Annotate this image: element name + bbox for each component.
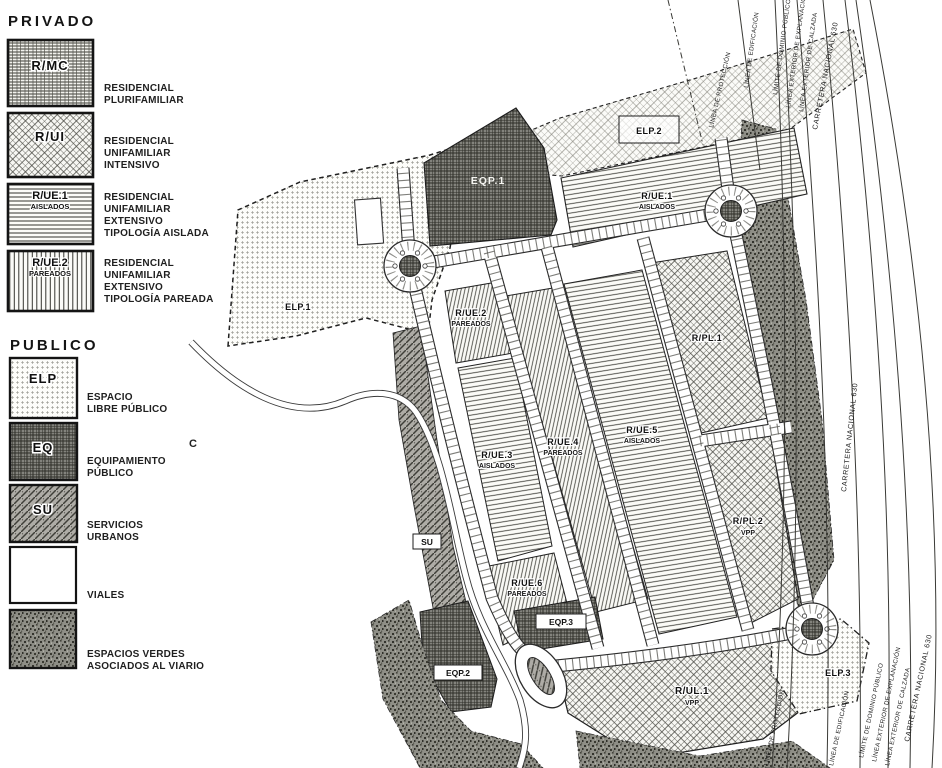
c-mark: C xyxy=(189,438,197,450)
legend-label: TIPOLOGÍA AISLADA xyxy=(104,226,209,239)
zoning-map: ELP.1 EQP.1 ELP.2 R/UE.1 AISLADOS R/UE.2… xyxy=(189,0,936,768)
roundabout-north xyxy=(705,185,757,237)
label-eqp1: EQP.1 xyxy=(471,175,506,187)
label-rul1-sub: VPP xyxy=(685,700,699,707)
swatch-elp xyxy=(10,358,77,418)
legend-label: URBANOS xyxy=(87,532,139,543)
legend-label: RESIDENCIAL xyxy=(104,258,174,269)
legend-label: PLURIFAMILIAR xyxy=(104,95,184,106)
legend-label: TIPOLOGÍA PAREADA xyxy=(104,292,214,305)
swatch-viales xyxy=(10,547,76,603)
plot-outline xyxy=(354,198,383,245)
legend-label: VIALES xyxy=(87,590,124,601)
label-rue6-sub: PAREADOS xyxy=(507,591,546,598)
swatch-rui-code: R/UI xyxy=(35,129,65,144)
swatch-rue1-code: R/UE.1 xyxy=(32,190,67,202)
swatch-rue2-code: R/UE.2 xyxy=(32,257,67,269)
label-rpl2-sub: VPP xyxy=(741,530,755,537)
label-elp1: ELP.1 xyxy=(285,302,311,312)
swatch-su-code: SU xyxy=(33,502,53,517)
label-rue2-sub: PAREADOS xyxy=(451,321,490,328)
legend-label: EQUIPAMIENTO xyxy=(87,456,166,467)
label-rpl1: R/PL.1 xyxy=(692,333,722,343)
legend-label: INTENSIVO xyxy=(104,160,160,171)
legend-label: EXTENSIVO xyxy=(104,216,163,227)
legend-label: ESPACIOS VERDES xyxy=(87,649,185,660)
legend-label: UNIFAMILIAR xyxy=(104,148,171,159)
label-rue3-sub: AISLADOS xyxy=(479,463,516,470)
legend-label: RESIDENCIAL xyxy=(104,83,174,94)
legend-label: ASOCIADOS AL VIARIO xyxy=(87,661,204,672)
label-rue5-sub: AISLADOS xyxy=(624,438,661,445)
label-rue3: R/UE.3 xyxy=(481,450,512,460)
legend: PRIVADO R/MC RESIDENCIAL PLURIFAMILIAR R… xyxy=(8,13,214,672)
legend-label: UNIFAMILIAR xyxy=(104,270,171,281)
swatch-rmc-code: R/MC xyxy=(31,58,68,73)
swatch-verdes xyxy=(10,610,76,668)
swatch-rue1-sub: AISLADOS xyxy=(31,202,70,211)
label-rpl2: R/PL.2 xyxy=(733,516,763,526)
label-su: SU xyxy=(421,537,433,547)
zoning-plan-canvas: ELP.1 EQP.1 ELP.2 R/UE.1 AISLADOS R/UE.2… xyxy=(0,0,942,768)
swatch-eq-code: EQ xyxy=(33,440,54,455)
legend-title-privado: PRIVADO xyxy=(8,13,96,30)
legend-label: UNIFAMILIAR xyxy=(104,204,171,215)
label-rul1: R/UL.1 xyxy=(675,686,709,697)
legend-label: EXTENSIVO xyxy=(104,282,163,293)
label-rue2: R/UE.2 xyxy=(455,308,486,318)
swatch-elp-code: ELP xyxy=(29,371,57,386)
label-elp3: ELP.3 xyxy=(825,668,851,678)
label-rue1: R/UE.1 xyxy=(641,191,672,201)
legend-label: LIBRE PÚBLICO xyxy=(87,402,167,415)
roundabout-west xyxy=(384,240,436,292)
swatch-rue2-sub: PAREADOS xyxy=(29,269,71,278)
label-rue1-sub: AISLADOS xyxy=(639,204,676,211)
label-rue4: R/UE.4 xyxy=(547,437,578,447)
label-rue5: R/UE.5 xyxy=(626,425,657,435)
label-eqp2: EQP.2 xyxy=(446,668,470,678)
swatch-rui xyxy=(8,113,93,177)
legend-label: ESPACIO xyxy=(87,392,133,403)
legend-label: PÚBLICO xyxy=(87,466,133,479)
label-eqp3: EQP.3 xyxy=(549,617,573,627)
label-rue4-sub: PAREADOS xyxy=(543,450,582,457)
label-elp2: ELP.2 xyxy=(636,126,662,136)
label-rue6: R/UE.6 xyxy=(511,578,542,588)
legend-label: RESIDENCIAL xyxy=(104,192,174,203)
legend-label: SERVICIOS xyxy=(87,520,143,531)
legend-title-publico: PUBLICO xyxy=(10,337,99,354)
swatch-rmc xyxy=(8,40,93,106)
legend-label: RESIDENCIAL xyxy=(104,136,174,147)
